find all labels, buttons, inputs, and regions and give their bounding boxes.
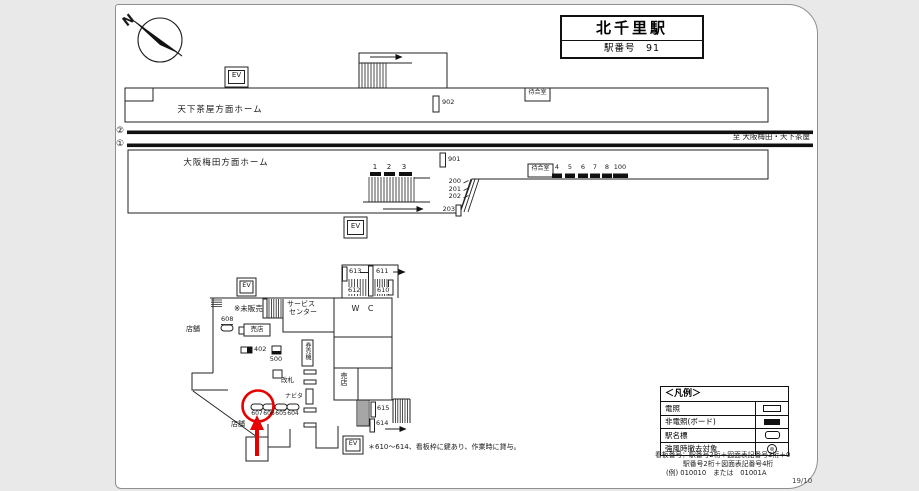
board-sign-icon	[764, 419, 780, 425]
legend-label-illuminated: 電照	[661, 403, 755, 414]
ev-label-concourse-south: EV	[343, 440, 363, 447]
sign-203-label: 203	[441, 206, 455, 213]
station-name: 北千里駅	[562, 17, 702, 41]
upper-platform-label: 天下茶屋方面ホーム	[170, 106, 270, 116]
track-2-label: ②	[116, 126, 124, 136]
legend-row-illuminated: 電照	[661, 402, 788, 416]
sign-611-label: 611	[376, 268, 388, 275]
illuminated-sign-icon	[763, 405, 781, 412]
sign-608-label: 608	[221, 316, 233, 325]
legend-row-board: 非電照(ボード)	[661, 416, 788, 430]
sheet-code: 19/10	[792, 477, 812, 485]
direction-note: 至 大阪梅田・天下茶屋	[688, 133, 810, 142]
kiosk-box-label: 売店	[244, 326, 270, 333]
legend-label-board: 非電照(ボード)	[661, 416, 755, 427]
kiosk-vertical-label: 売店	[340, 372, 347, 398]
store-label-left: 店舗	[186, 325, 200, 333]
legend-row-station-sign: 駅名標	[661, 429, 788, 443]
ev-label-lower-platform: EV	[344, 222, 367, 230]
legend: ＜凡例＞ 電照 非電照(ボード) 駅名標 強風時撤去対象	[660, 386, 789, 456]
sign-5-label: 5	[563, 164, 577, 171]
sign-100-label: 100	[611, 164, 629, 171]
lower-platform-label: 大阪梅田方面ホーム	[176, 159, 276, 169]
service-center-line1: サービス	[282, 300, 320, 308]
sign-613-label: 613	[349, 268, 361, 275]
footer-line3: (例) 010010 または 01001A	[666, 470, 766, 478]
sign-1-label: 1	[369, 163, 381, 171]
sign-202-label: 202	[443, 193, 461, 200]
sign-3-label: 3	[397, 163, 411, 171]
sign-500-label: 500	[268, 356, 284, 363]
sign-901-label: 901	[448, 156, 460, 163]
track-1-label: ①	[116, 139, 124, 149]
title-block: 北千里駅 駅番号 91	[560, 15, 704, 59]
sign-615-label: 615	[377, 405, 389, 412]
service-center-line2: センター	[284, 308, 322, 316]
ticket-machine-label: 券売機	[304, 342, 310, 365]
sign-612-label: 612	[348, 287, 360, 294]
restroom-label: W C	[336, 304, 392, 313]
legend-label-station-sign: 駅名標	[661, 430, 755, 441]
ticket-gate-label: 改札	[281, 377, 294, 384]
sign-604-label: 604	[286, 411, 300, 418]
sign-614-label: 614	[376, 420, 388, 427]
sign-610-label: 610	[377, 287, 389, 294]
store-label-bottom: 店舗	[231, 420, 245, 428]
station-name-sign-icon	[765, 431, 780, 439]
navita-label: ナビタ	[285, 394, 303, 401]
sign-902-label: 902	[442, 99, 454, 106]
sign-402-label: 402	[254, 346, 266, 353]
footer-line2: 駅番号2桁＋図面表記番号4桁	[683, 461, 773, 469]
ev-label-upper-platform: EV	[225, 71, 248, 79]
footnote: ＊610～614、看板枠に鍵あり、作業時に貸与。	[368, 443, 520, 451]
sign-4-label: 4	[550, 164, 564, 171]
sign-2-label: 2	[383, 163, 395, 171]
waiting-room-upper: 待合室	[525, 90, 550, 97]
footer-line1: 看板番号：駅番号2桁＋図面表記番号3桁＋0	[655, 452, 790, 460]
station-billboard-map: N 北千里駅 駅番号 91 天下茶屋方面ホーム EV 902 待合室 ② ① 至…	[0, 0, 919, 491]
unsold-note: ※未販売	[234, 305, 263, 314]
legend-title: ＜凡例＞	[661, 387, 788, 402]
ev-label-concourse-north: EV	[237, 282, 256, 289]
station-number: 駅番号 91	[562, 41, 702, 57]
